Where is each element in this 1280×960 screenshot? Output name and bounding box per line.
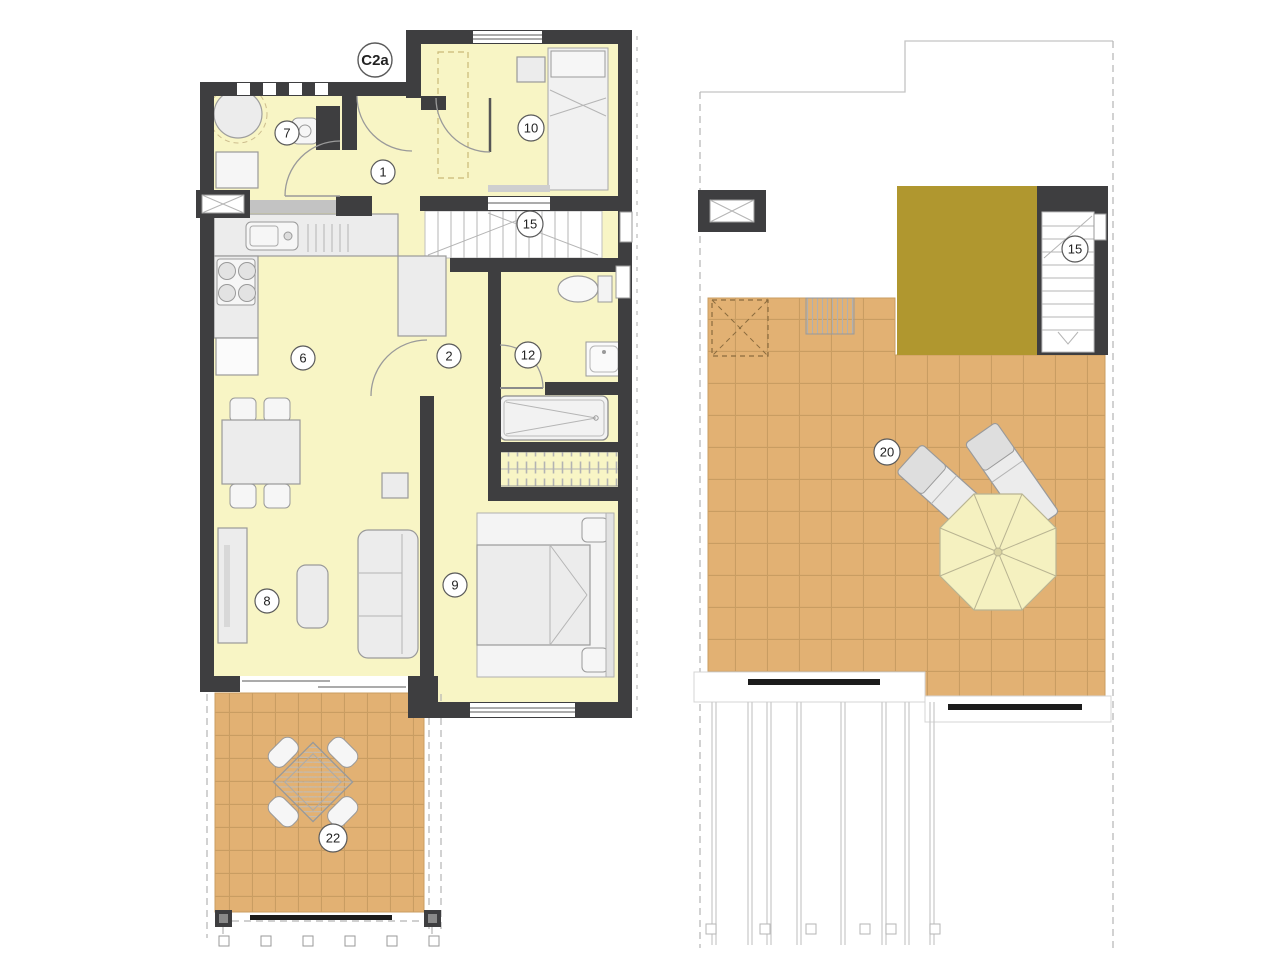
svg-text:15: 15 xyxy=(523,217,537,232)
roof-window-box xyxy=(698,190,766,232)
floor-plan-sheet: C2a 1 2 6 7 8 9 10 12 15 22 xyxy=(0,0,1280,960)
wall xyxy=(336,196,372,216)
wall xyxy=(500,442,620,452)
ground-floor-plan xyxy=(196,30,637,946)
pergola-posts xyxy=(712,702,934,945)
room-label-stairs-ground: 15 xyxy=(517,211,543,237)
kitchen-tall-cabinet xyxy=(398,256,446,336)
wall xyxy=(406,44,421,98)
room-label-corridor: 2 xyxy=(437,344,461,368)
wall xyxy=(488,272,501,497)
wall xyxy=(421,96,446,110)
svg-text:22: 22 xyxy=(326,831,340,846)
window-bed2 xyxy=(473,31,542,43)
terrace-railing xyxy=(250,915,392,920)
bed-double-mattress xyxy=(477,545,590,645)
wall xyxy=(488,487,632,501)
wall xyxy=(420,396,434,676)
svg-text:6: 6 xyxy=(299,351,306,366)
washbasin-tap xyxy=(602,350,606,354)
marker-square xyxy=(345,936,355,946)
room-label-entry: 1 xyxy=(371,160,395,184)
roof-railing xyxy=(948,704,1082,710)
marker-square xyxy=(429,936,439,946)
terrace-bottom-markers xyxy=(219,927,439,946)
dining-chair xyxy=(264,398,290,422)
terrace-boundary-right xyxy=(429,694,441,930)
fridge xyxy=(216,338,258,375)
burner xyxy=(239,285,256,302)
svg-text:8: 8 xyxy=(263,594,270,609)
svg-text:10: 10 xyxy=(524,121,538,136)
svg-text:20: 20 xyxy=(880,445,894,460)
terrace-post-cap xyxy=(428,914,437,923)
room-label-kitchen: 6 xyxy=(291,346,315,370)
svg-text:7: 7 xyxy=(283,126,290,141)
tv-screen xyxy=(224,545,230,627)
footing xyxy=(886,924,896,934)
ac-unit xyxy=(806,298,854,334)
room-label-bed-main: 9 xyxy=(443,573,467,597)
marker-square xyxy=(387,936,397,946)
wall xyxy=(342,82,357,150)
roof-railing xyxy=(748,679,880,685)
sliding-door-terrace xyxy=(240,676,408,692)
footing xyxy=(860,924,870,934)
dining-table xyxy=(222,420,300,484)
room-label-solarium: 20 xyxy=(874,439,900,465)
room-label-bath2: 12 xyxy=(515,342,541,368)
svg-text:1: 1 xyxy=(379,165,386,180)
room-label-bed2: 10 xyxy=(518,115,544,141)
room-label-living: 8 xyxy=(255,589,279,613)
unit-label: C2a xyxy=(358,43,392,77)
svg-text:9: 9 xyxy=(451,578,458,593)
toilet-2-bowl xyxy=(558,276,598,302)
wall xyxy=(316,106,340,150)
window-stripe xyxy=(276,83,289,95)
stairs-hatch-door xyxy=(620,212,632,242)
headboard xyxy=(606,513,614,677)
wall xyxy=(618,30,632,718)
shower-column xyxy=(214,90,262,138)
kitchen-counter-top xyxy=(214,214,398,256)
window-sill xyxy=(488,185,550,192)
staircase-ground xyxy=(425,211,602,258)
window-stripe xyxy=(328,83,340,95)
dining-chair xyxy=(230,398,256,422)
nightstand xyxy=(517,57,545,82)
bathtub xyxy=(500,396,608,440)
pillow-single xyxy=(551,51,605,77)
roof-access-block xyxy=(897,186,1037,355)
faucet xyxy=(284,232,292,240)
roof-edge-outline xyxy=(700,41,1113,92)
sofa xyxy=(358,530,418,658)
marker-square xyxy=(261,936,271,946)
pillow xyxy=(582,648,608,672)
toilet-2-tank xyxy=(598,276,612,302)
coffee-table xyxy=(297,565,328,628)
burner xyxy=(219,285,236,302)
footing xyxy=(806,924,816,934)
pillow xyxy=(582,518,608,542)
footing xyxy=(706,924,716,934)
window-stripe xyxy=(302,83,315,95)
marker-square xyxy=(303,936,313,946)
dining-chair xyxy=(264,484,290,508)
room-label-bath1: 7 xyxy=(275,121,299,145)
stairs-run xyxy=(425,211,602,258)
footing xyxy=(930,924,940,934)
marker-square xyxy=(219,936,229,946)
parasol-pole xyxy=(994,548,1002,556)
svg-text:C2a: C2a xyxy=(361,52,389,69)
window-stripe xyxy=(250,83,263,95)
tv-cabinet xyxy=(218,528,247,643)
svg-text:15: 15 xyxy=(1068,242,1082,257)
burner xyxy=(219,263,236,280)
side-table xyxy=(382,473,408,498)
plan-drawing: C2a 1 2 6 7 8 9 10 12 15 22 xyxy=(0,0,1280,960)
svg-text:12: 12 xyxy=(521,348,535,363)
stairs-door xyxy=(1094,214,1106,240)
wall xyxy=(200,676,240,692)
room-label-stairs-roof: 15 xyxy=(1062,236,1088,262)
svg-text:2: 2 xyxy=(445,349,452,364)
washer xyxy=(216,152,258,188)
wall xyxy=(200,82,214,692)
room-label-terrace: 22 xyxy=(319,824,347,852)
window-bed-main xyxy=(470,703,575,717)
wall xyxy=(545,382,632,395)
dining-chair xyxy=(230,484,256,508)
footing xyxy=(760,924,770,934)
duct xyxy=(616,266,630,298)
low-partition xyxy=(248,200,336,213)
terrace-post-cap xyxy=(219,914,228,923)
wall xyxy=(450,258,632,272)
roof-terrace-plan xyxy=(694,41,1113,948)
step-outline xyxy=(694,672,925,702)
burner xyxy=(239,263,256,280)
terrace-ground xyxy=(207,693,441,938)
parasol xyxy=(940,494,1056,610)
kitchen-window-box xyxy=(196,190,250,218)
